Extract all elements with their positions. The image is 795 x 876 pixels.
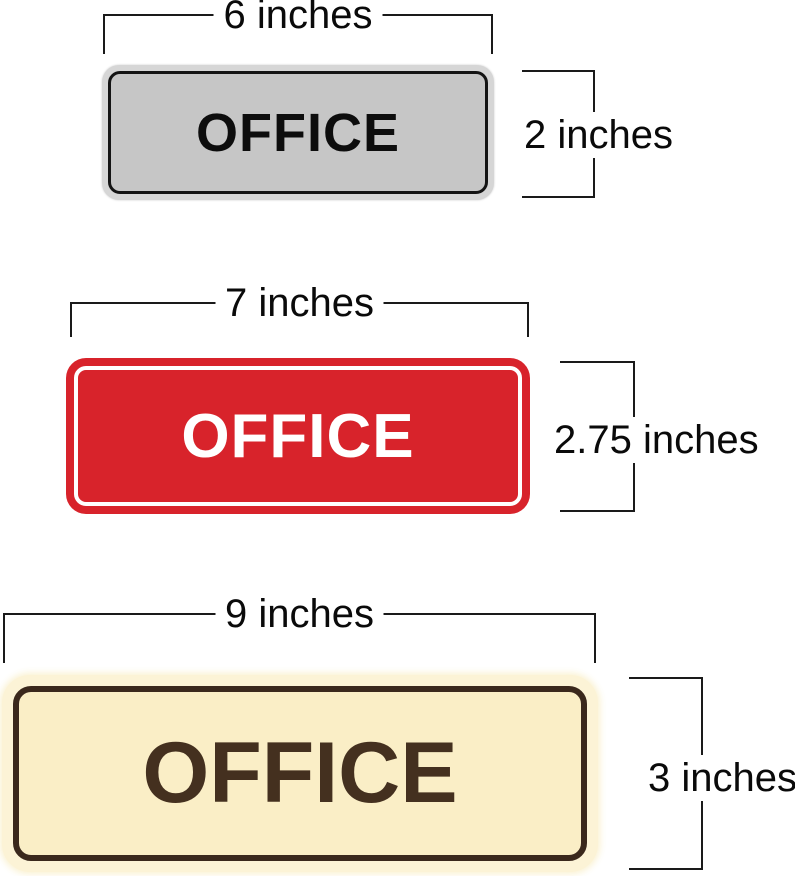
office-sign-silver-face: OFFICE — [108, 71, 488, 194]
width-dimension-label-cream: 9 inches — [215, 591, 384, 637]
office-sign-red-face: OFFICE — [74, 366, 522, 506]
height-dimension-label-cream: 3 inches — [643, 755, 795, 801]
sign-text-cream: OFFICE — [142, 724, 457, 823]
office-sign-red: OFFICE — [66, 358, 530, 514]
height-dimension-label-silver: 2 inches — [519, 112, 678, 158]
width-dimension-bracket-cream: 9 inches — [3, 613, 596, 615]
office-sign-silver: OFFICE — [102, 65, 494, 200]
sign-text-red: OFFICE — [181, 401, 414, 472]
sign-text-silver: OFFICE — [196, 102, 400, 164]
product-dimension-diagram: 6 inches OFFICE 2 inches 7 inches OFFICE… — [0, 0, 795, 876]
office-sign-cream: OFFICE — [2, 675, 598, 872]
width-dimension-bracket-red: 7 inches — [70, 302, 529, 304]
height-dimension-label-red: 2.75 inches — [549, 417, 764, 463]
width-dimension-bracket-silver: 6 inches — [103, 14, 493, 16]
width-dimension-label-red: 7 inches — [215, 280, 384, 326]
width-dimension-label-silver: 6 inches — [214, 0, 383, 38]
office-sign-cream-face: OFFICE — [13, 686, 587, 861]
